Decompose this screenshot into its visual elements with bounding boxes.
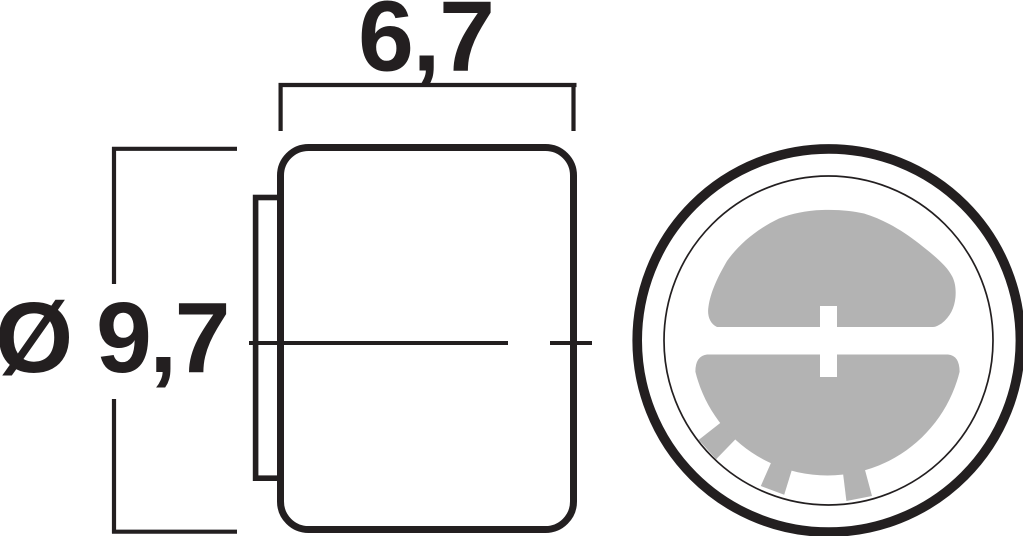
svg-text:6,7: 6,7 (358, 0, 495, 93)
svg-text:Ø 9,7: Ø 9,7 (0, 282, 231, 394)
